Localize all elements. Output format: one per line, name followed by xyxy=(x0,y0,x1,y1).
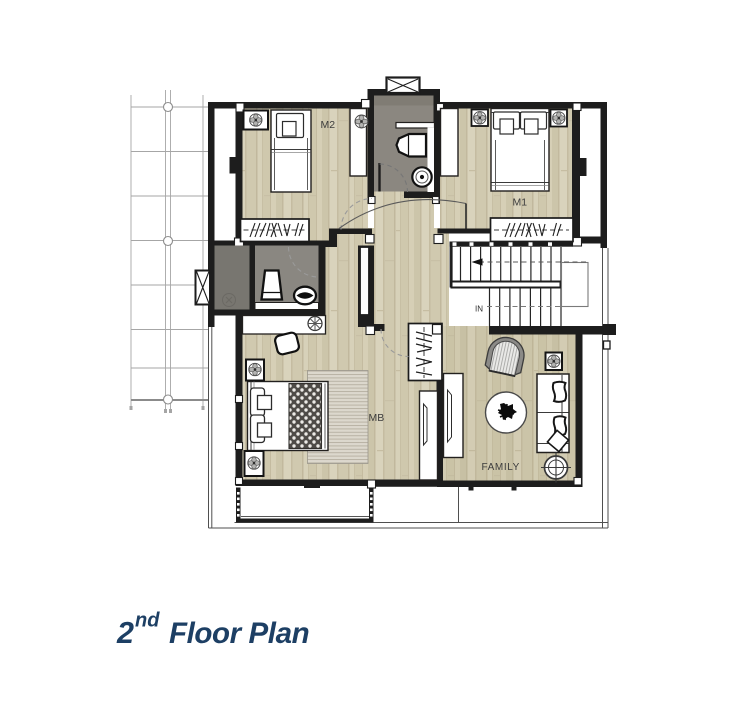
svg-text:M2: M2 xyxy=(321,119,336,131)
svg-text:M1: M1 xyxy=(513,197,528,209)
svg-text:IN: IN xyxy=(475,305,483,314)
svg-text:Floor Plan: Floor Plan xyxy=(169,617,309,650)
svg-text:MB: MB xyxy=(369,412,385,424)
svg-text:2: 2 xyxy=(116,616,134,650)
svg-text:nd: nd xyxy=(135,610,160,632)
svg-text:FAMILY: FAMILY xyxy=(482,462,520,473)
